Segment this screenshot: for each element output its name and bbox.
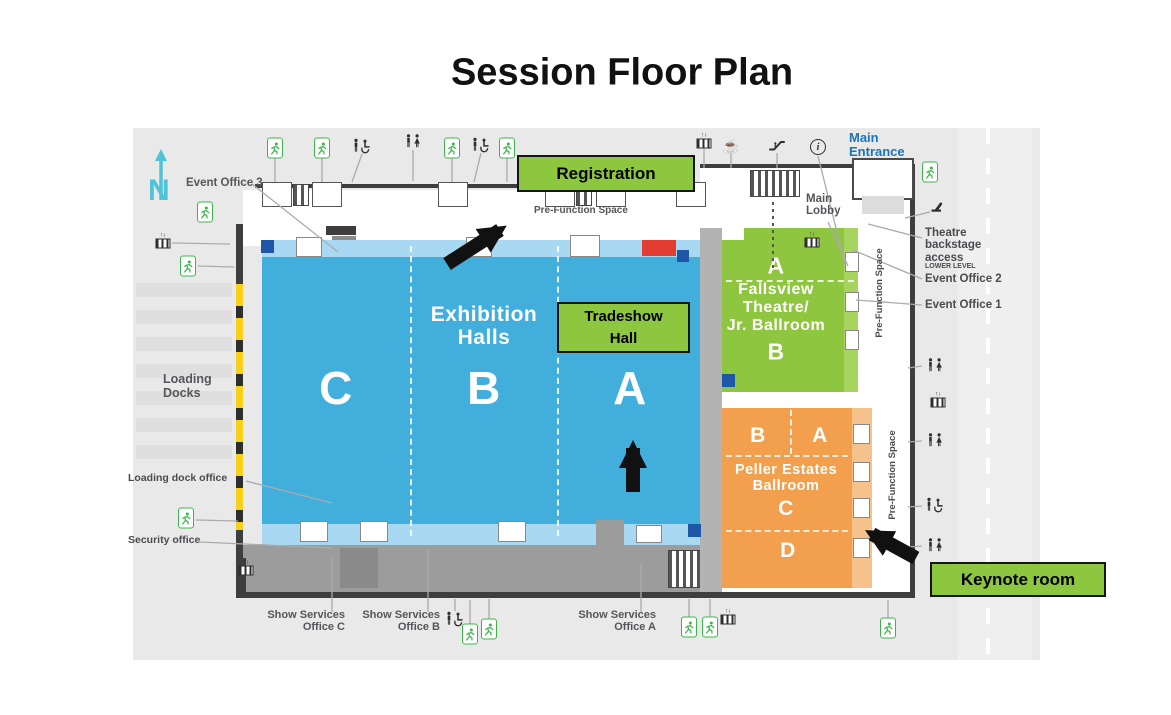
floor-plan-page: Session Floor Plan (0, 0, 1171, 715)
wall-jog (326, 226, 356, 235)
peller-section-c: C (778, 497, 794, 521)
fallsview-section-a: A (767, 253, 784, 280)
door-cluster (438, 182, 468, 207)
exhibition-halls-title: Exhibition Halls (431, 303, 538, 349)
door-cluster (853, 424, 870, 444)
right-wall (910, 164, 915, 594)
fallsview-name: Fallsview Theatre/ Jr. Ballroom (727, 281, 825, 335)
bottom-gray-block (596, 520, 624, 545)
closed-area-marker (642, 240, 676, 256)
peller-divider-dashed (790, 410, 794, 454)
door-cluster (570, 235, 600, 257)
left-wall-upper (236, 224, 243, 284)
tradeshow-hall-callout: Tradeshow Hall (557, 302, 690, 353)
door-cluster (845, 292, 859, 312)
dock-bay (136, 418, 232, 432)
door-cluster (853, 538, 870, 558)
door-cluster (296, 237, 322, 257)
exhibition-hall-b: B (467, 361, 501, 415)
door-cluster (845, 330, 859, 350)
dock-bay (136, 364, 232, 378)
door-cluster (498, 521, 526, 542)
door-cluster (853, 498, 870, 518)
service-corridor (243, 545, 710, 594)
dock-bay (136, 391, 232, 405)
exhibition-hall-a: A (613, 361, 647, 415)
door-cluster (845, 252, 859, 272)
door-cluster (312, 182, 342, 207)
loading-dock-wall (236, 284, 243, 530)
dock-bay (136, 310, 232, 324)
corner-wall (236, 558, 246, 594)
main-entrance-vestibule (852, 158, 914, 200)
wall-stairs (293, 184, 309, 206)
registration-callout: Registration (517, 155, 695, 192)
page-title: Session Floor Plan (451, 52, 793, 95)
peller-name: Peller Estates Ballroom (735, 462, 837, 494)
door-marker (677, 250, 689, 262)
bottom-wall (236, 592, 915, 598)
door-marker (261, 240, 274, 253)
dock-bay (136, 337, 232, 351)
lobby-top-wall (700, 164, 856, 168)
door-cluster (262, 182, 292, 207)
door-cluster (300, 521, 328, 542)
door-cluster (360, 521, 388, 542)
peller-section-a: A (812, 424, 828, 448)
hall-divider-dashed (557, 246, 561, 536)
peller-section-d: D (780, 539, 796, 563)
hall-divider-strip (700, 228, 722, 594)
dock-bay (136, 283, 232, 297)
peller-section-b: B (750, 424, 766, 448)
door-cluster (853, 462, 870, 482)
keynote-room-callout: Keynote room (930, 562, 1106, 597)
hall-divider-dashed (410, 246, 414, 536)
door-marker (688, 524, 701, 537)
door-cluster (636, 525, 662, 543)
dock-bay (136, 445, 232, 459)
exhibition-hall-c: C (319, 361, 353, 415)
door-cluster (466, 237, 492, 257)
peller-divider-dashed (726, 455, 848, 459)
door-marker (722, 374, 735, 387)
fallsview-notch (722, 228, 744, 240)
peller-divider-dashed (726, 530, 848, 534)
lobby-side-box (862, 196, 904, 214)
security-office-room (340, 548, 378, 588)
compass-north: N (148, 174, 170, 208)
lobby-staircase (750, 170, 800, 197)
fallsview-section-b: B (767, 339, 784, 366)
